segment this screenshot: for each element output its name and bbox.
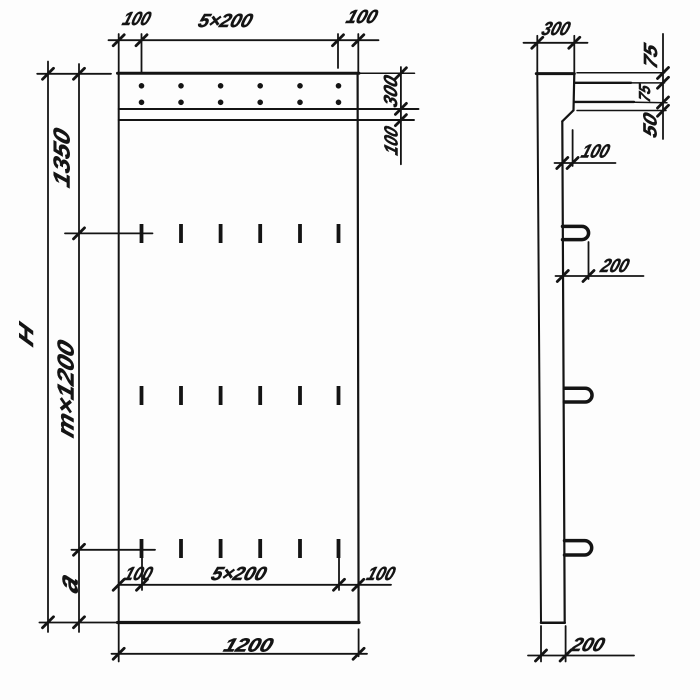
svg-text:m×1200: m×1200 — [53, 337, 78, 440]
svg-text:1350: 1350 — [49, 125, 74, 190]
svg-text:5×200: 5×200 — [195, 10, 255, 31]
svg-text:1200: 1200 — [221, 635, 276, 656]
svg-text:5×200: 5×200 — [208, 563, 269, 584]
